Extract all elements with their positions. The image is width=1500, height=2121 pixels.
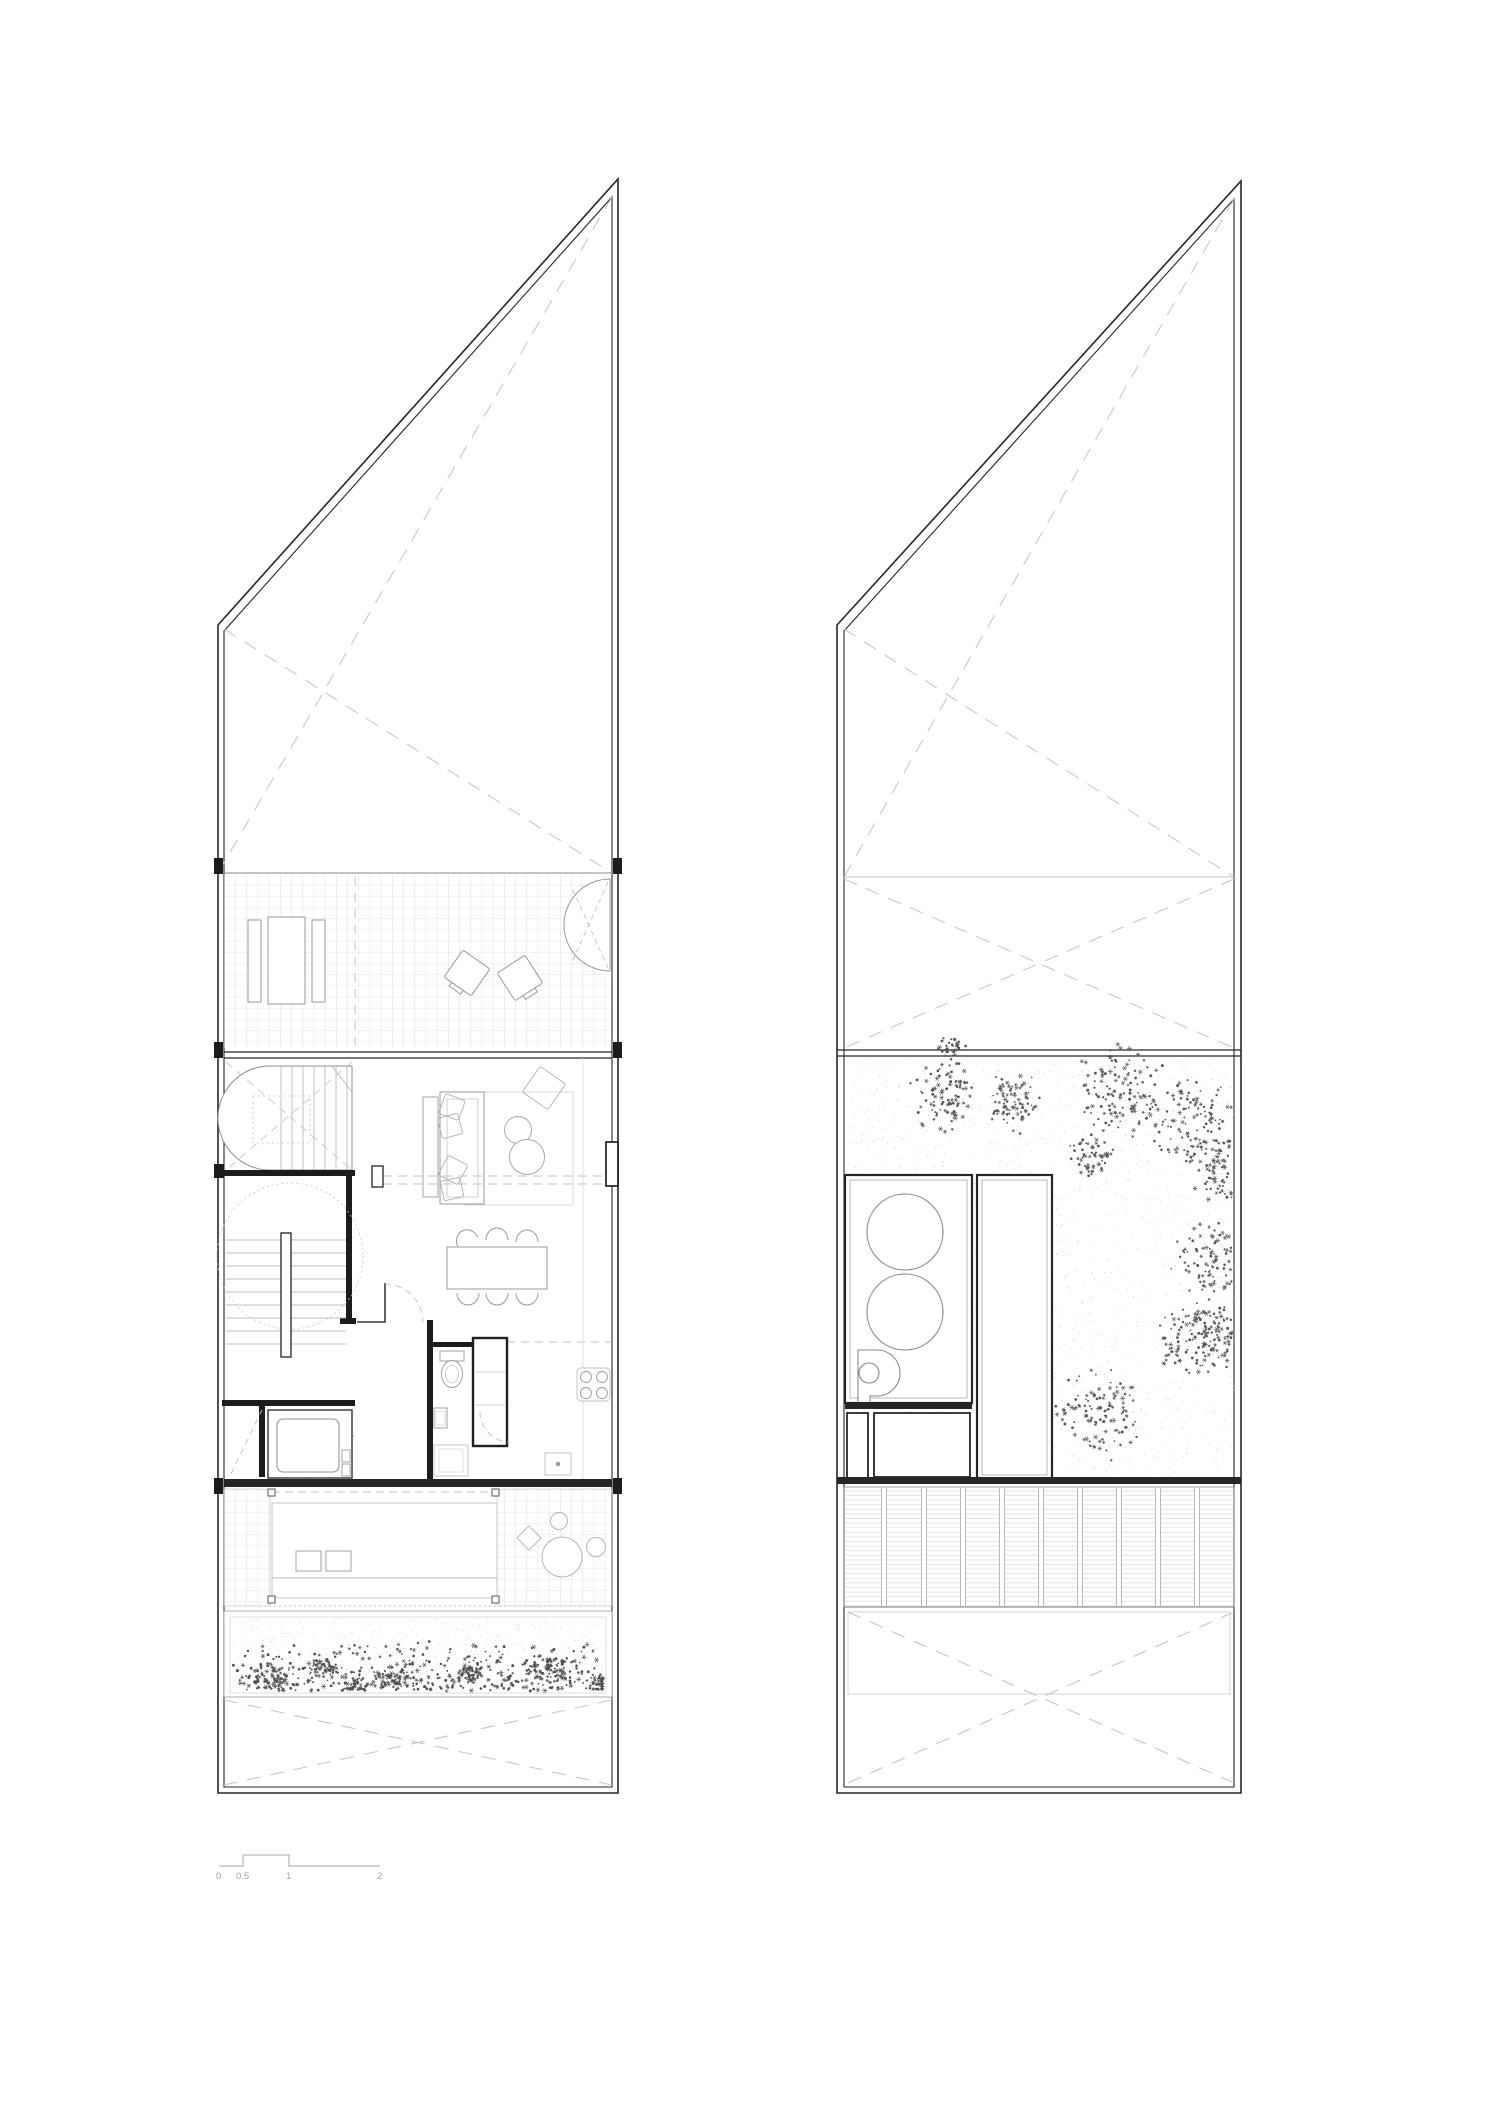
scale-label-0: 0 xyxy=(216,1871,221,1882)
chair xyxy=(551,1513,568,1530)
console-table xyxy=(423,1097,438,1197)
planter-box xyxy=(847,1413,868,1478)
round-table xyxy=(542,1537,582,1577)
stair-rail xyxy=(281,1233,291,1357)
window-frame xyxy=(606,1142,618,1186)
left-courtyard xyxy=(214,1478,622,1606)
scale-bar: 0 0.5 1 2 xyxy=(216,1855,382,1882)
dining-area xyxy=(447,1226,547,1305)
terrace-bench xyxy=(312,920,325,1002)
right-roof-void-dashes xyxy=(844,199,1234,877)
right-bottom-void-dashes xyxy=(848,1612,1234,1783)
stair-wall xyxy=(222,1170,355,1176)
tank-circle xyxy=(867,1274,943,1350)
courtyard-deck xyxy=(272,1503,497,1598)
left-roof-void-dashes xyxy=(218,197,612,873)
door-swing-arc xyxy=(385,1284,423,1322)
toilet-bowl xyxy=(442,1361,463,1388)
terrace-dining-set xyxy=(248,917,325,1004)
chair xyxy=(587,1538,606,1557)
right-mid-void-dashes xyxy=(844,879,1234,1048)
utility-block xyxy=(845,1175,1052,1480)
left-planting-bed xyxy=(224,1611,612,1697)
scale-label-05: 0.5 xyxy=(236,1871,249,1882)
wall-pier xyxy=(214,1478,223,1494)
right-plan xyxy=(837,181,1241,1793)
courtyard-bottom-wall xyxy=(837,1477,1241,1484)
lower-stair xyxy=(217,1183,363,1357)
wall-pier xyxy=(613,1478,622,1494)
toilet-tank xyxy=(440,1351,464,1361)
bathroom xyxy=(427,1320,510,1483)
bottom-light-rect xyxy=(848,1612,1230,1694)
stool xyxy=(296,1551,321,1571)
stool xyxy=(326,1551,351,1571)
left-plan xyxy=(214,179,622,1793)
planter-box xyxy=(874,1413,970,1477)
dining-table xyxy=(447,1247,547,1289)
fixture-circle xyxy=(859,1363,879,1383)
coffee-table xyxy=(510,1140,545,1175)
bathroom-wall xyxy=(433,1342,473,1347)
door-swing-line xyxy=(231,1410,262,1474)
scale-bar-line xyxy=(219,1855,380,1866)
laundry-wall xyxy=(259,1406,265,1477)
bathroom-wall xyxy=(427,1320,433,1483)
corridor xyxy=(977,1175,1052,1480)
kitchen xyxy=(507,1342,612,1475)
block-wall xyxy=(845,1402,972,1409)
terrace-table xyxy=(268,917,305,1004)
sink-drain xyxy=(556,1462,560,1466)
courtyard-tile-grid xyxy=(224,1489,270,1606)
stair-wall xyxy=(346,1176,352,1324)
scale-label-2: 2 xyxy=(377,1871,382,1882)
left-floor-slab-line xyxy=(224,1052,612,1058)
right-bottom-area xyxy=(848,1612,1234,1783)
wall-pier xyxy=(214,1164,224,1178)
left-bottom-void-dashes xyxy=(224,1700,612,1785)
laundry-wall xyxy=(222,1400,355,1406)
right-floor-slab-line xyxy=(837,1050,1241,1056)
tank-circle xyxy=(867,1194,943,1270)
bathroom-cabinet xyxy=(473,1338,507,1446)
stair-wall xyxy=(340,1318,356,1324)
courtyard-top-wall xyxy=(224,1479,612,1487)
floor-plan-drawing: 0 0.5 1 2 xyxy=(0,0,1500,2121)
scale-label-1: 1 xyxy=(286,1871,291,1882)
left-roof-terrace xyxy=(214,858,622,1058)
section-marker-line xyxy=(372,1166,612,1187)
laundry-room xyxy=(222,1400,355,1478)
terrace-bench xyxy=(248,920,261,1002)
hall-wall-stub xyxy=(357,1283,385,1322)
wood-decking xyxy=(844,1487,1234,1607)
